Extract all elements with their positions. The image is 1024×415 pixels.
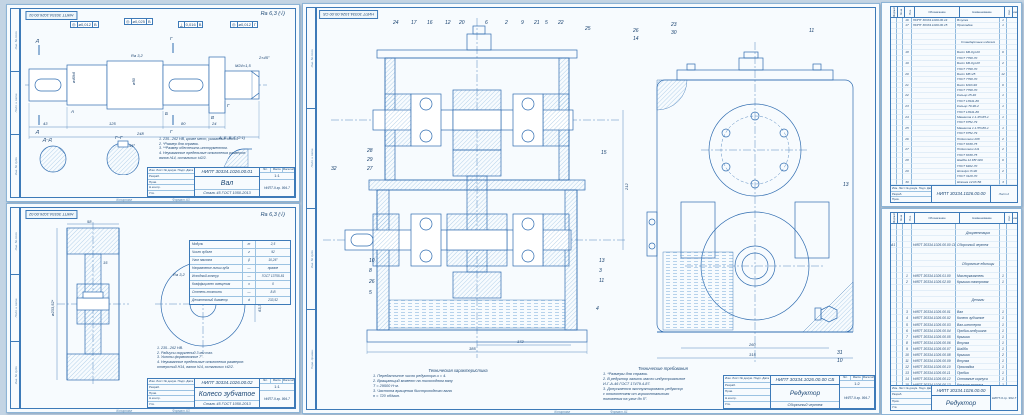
param-name: Число зубьев — [190, 249, 243, 256]
param-value: 233,52 — [256, 297, 290, 304]
col-note: Примеч. — [1013, 7, 1017, 17]
spec-header: Формат Зона Поз. Обозначение Наименовани… — [891, 213, 1017, 224]
balloon-callout: 6 — [485, 20, 488, 26]
mass-label: Масса — [271, 379, 282, 383]
sig-row: Разраб. — [724, 383, 770, 390]
spec-rows: Документация — [891, 224, 1017, 385]
lit-label: Лит. — [840, 376, 851, 380]
spec-designation: НИПТ 30334.1026.00.00 — [932, 186, 990, 201]
col-pos: Поз. — [908, 215, 912, 221]
sheet-spec-2: Формат Зона Поз. Обозначение Наименовани… — [881, 2, 1022, 207]
title-right: Лит.МассаМасштаб 1:1 НИПТ-9 гр. 994-7 — [260, 168, 294, 196]
margin-label: Перв. примен. — [310, 349, 314, 369]
gear-param-table: Модуль m 2,5 Число зубьев z 92 Угол накл… — [189, 240, 291, 305]
section-label: Г–Г — [115, 135, 123, 140]
dim: ø233,52* — [50, 299, 55, 316]
col-qty: Кол. — [1006, 215, 1010, 221]
org: НИПТ-9 гр. 994-7 — [260, 391, 294, 407]
balloon-callout: 26 — [369, 279, 375, 285]
balloon-callout: 22 — [558, 20, 564, 26]
signature-column: Изм. Лист № докум. Подп. Дата Разраб. Пр… — [148, 379, 195, 407]
dim: M24×1,5 — [235, 63, 251, 68]
balloon-callout: 23 — [671, 22, 677, 28]
part-name: Колесо зубчатое — [195, 388, 259, 400]
margin-label: Инв. № подл. — [310, 48, 314, 67]
tech-req-title: Технические требования — [603, 366, 723, 371]
margin-label: Инв. № дубл. — [14, 157, 18, 175]
balloon-callout: 12 — [445, 20, 451, 26]
scale-value: 1:1 — [260, 173, 294, 180]
mass-label: Масса — [851, 376, 862, 380]
balloon-callout: 28 — [367, 148, 373, 154]
org: НИПТ-9 гр. 994-7 — [990, 386, 1017, 410]
title-right: Лит.МассаМасштаб 1:1 НИПТ-9 гр. 994-7 — [260, 379, 294, 407]
copy-label: Копировал — [116, 409, 132, 413]
signature-column: Изм. Лист № докум. Подп. Дата Разраб. Пр… — [891, 186, 932, 202]
dim: Ra 3,2 — [131, 53, 144, 58]
title-main: НИПТ 30334.1026.00.01 Вал Сталь 45 ГОСТ … — [195, 168, 260, 196]
margin-label: Инв. № дубл. — [14, 366, 18, 384]
balloon-callout: 31 — [837, 350, 843, 356]
col-note: Примеч. — [1013, 213, 1017, 223]
param-symbol: m — [243, 241, 256, 248]
sig-row: Утв. — [891, 405, 931, 410]
param-value: ГОСТ 13755-81 — [256, 273, 290, 280]
margin-label: Подп. и дата — [310, 149, 314, 168]
gdt-frame: ◎ø0,025В — [125, 18, 153, 25]
signature-column: Изм. Лист № докум. Подп. Дата Разраб. Пр… — [891, 386, 932, 410]
sheet-number: Лист 2 — [990, 186, 1017, 202]
balloon-callout: 8 — [369, 268, 372, 274]
balloon-callout: 2 — [505, 20, 508, 26]
dim: 315 — [749, 352, 756, 357]
col-qty: Кол. — [1006, 9, 1010, 15]
balloon-callout: 10 — [837, 358, 843, 364]
tech-req-lines: 1. *Размеры для справок. 2. В редуктор з… — [603, 372, 723, 402]
dim: 43 — [43, 121, 48, 126]
param-value: правое — [256, 265, 290, 272]
param-name: Направление линии зуба — [190, 265, 243, 272]
sig-row: Утв. — [148, 402, 194, 407]
margin-label: Подп. и дата — [14, 94, 18, 113]
drawing-designation: НИПТ 30334.1026.00.02 — [195, 379, 259, 388]
sig-row: Утв. — [724, 402, 770, 408]
param-row: Степень точности — 8-В — [190, 289, 290, 297]
assembly-name: Редуктор — [771, 385, 839, 401]
drawing-board: Инв. № подл. Подп. и дата Инв. № дубл. Н… — [0, 0, 1024, 415]
corner-stamp: НИПТ 30334.1026.00.01 — [25, 11, 77, 20]
roughness-mark: Ra 6,3 (√) — [261, 212, 285, 218]
balloon-callout: 24 — [393, 20, 399, 26]
margin-label: Подп. и дата — [14, 299, 18, 318]
tech-characteristics: Техническая характеристика 1. Передаточн… — [373, 368, 543, 399]
dim: 260 — [748, 342, 756, 347]
balloon-callout: 30 — [671, 30, 677, 36]
balloon-callout: 11 — [809, 28, 814, 34]
balloon-callout: 21 — [534, 20, 540, 26]
param-symbol: x — [243, 281, 256, 288]
param-name: Исходный контур — [190, 273, 243, 280]
dim: 125 — [109, 121, 116, 126]
col-pos: Поз. — [908, 9, 912, 15]
sig-row: Пров. — [724, 389, 770, 396]
balloon-callout: 3 — [599, 268, 602, 274]
col-format: Формат — [892, 213, 896, 223]
balloon-callout: 17 — [411, 20, 417, 26]
col-name: Наименование — [960, 213, 1005, 223]
balloon-callout: 5 — [545, 20, 548, 26]
scale-label: Масштаб — [283, 379, 294, 383]
param-symbol: — — [243, 289, 256, 296]
balloon-callout: 32 — [331, 166, 337, 172]
drawing-designation: НИПТ 30334.1026.00.01 — [195, 168, 259, 177]
scale-label: Масштаб — [863, 376, 874, 380]
signature-column: Изм. Лист № докум. Подп. Дата Разраб. Пр… — [724, 376, 771, 408]
dim: 24 — [211, 121, 217, 126]
col-zone: Зона — [899, 215, 903, 221]
param-name: Модуль — [190, 241, 243, 248]
param-row: Направление линии зуба — правое — [190, 265, 290, 273]
format-label: Формат A3 — [172, 409, 189, 413]
tech-char-title: Техническая характеристика — [373, 368, 543, 373]
param-name: Коэффициент смещения — [190, 281, 243, 288]
param-symbol: d — [243, 297, 256, 304]
dim: 2×45° — [258, 55, 270, 60]
dim: Ra 3,2 — [173, 272, 186, 277]
balloon-callout: 4 — [596, 306, 599, 312]
spec-footer: Изм. Лист № докум. Подп. Дата Разраб. Пр… — [891, 185, 1017, 202]
material: Сталь 45 ГОСТ 1050-2013 — [195, 400, 259, 407]
scale-label: Масштаб — [283, 168, 294, 172]
balloon-callout: 13 — [843, 182, 849, 188]
scale-value: 1:1 — [260, 384, 294, 391]
copy-label: Копировал — [116, 198, 132, 202]
material: Сталь 45 ГОСТ 1050-2013 — [195, 189, 259, 196]
balloon-callout: 10 — [369, 258, 375, 264]
balloon-callout: 15 — [601, 150, 607, 156]
param-name: Делительный диаметр — [190, 297, 243, 304]
shaft-title-block: Изм. Лист № докум. Подп. Дата Разраб. Пр… — [147, 167, 295, 197]
roughness-mark: Ra 6,3 (√) — [261, 11, 285, 17]
dim: 248 — [136, 131, 144, 136]
spec-header: Формат Зона Поз. Обозначение Наименовани… — [891, 7, 1017, 18]
param-row: Коэффициент смещения x 0 — [190, 281, 290, 289]
param-value: 10,26° — [256, 257, 290, 264]
lit-label: Лит. — [260, 379, 271, 383]
spec-title: Редуктор — [932, 396, 990, 410]
balloon-callout: 9 — [521, 20, 524, 26]
param-value: 0 — [256, 281, 290, 288]
cut-label: Д — [35, 129, 40, 134]
dim: 45° — [129, 143, 135, 148]
param-row: Угол наклона β 10,26° — [190, 257, 290, 265]
datum-letter: В — [211, 115, 214, 120]
sheet-assembly: Инв. № подл. Подп. и дата Инв. № дубл. П… — [302, 3, 880, 414]
param-value: 8-В — [256, 289, 290, 296]
title-main: НИПТ 30334.1026.00.00 СБ Редуктор Сбороч… — [771, 376, 840, 408]
signature-column: Изм. Лист № докум. Подп. Дата Разраб. Пр… — [148, 168, 195, 196]
dim: 212 — [624, 183, 629, 191]
datum-letter: Г — [227, 103, 230, 108]
copy-label: Копировал — [554, 410, 570, 414]
section-label: Д–Д — [42, 137, 53, 142]
col-designation: Обозначение — [915, 213, 960, 223]
col-designation: Обозначение — [915, 7, 960, 17]
param-value: 92 — [256, 249, 290, 256]
sig-header: Изм. Лист № докум. Подп. Дата — [724, 376, 770, 383]
margin-label: Инв. № подл. — [14, 232, 18, 251]
param-symbol: — — [243, 265, 256, 272]
sig-row: Н.контр. — [724, 396, 770, 403]
balloon-callout: 16 — [427, 20, 433, 26]
assembly-side-view: 260 315 — [645, 14, 865, 366]
dim: ø40k6 — [71, 71, 76, 83]
gear-notes: 1. 235...262 HB. 2. Радиусы скруглений 3… — [157, 346, 292, 369]
param-row: Исходный контур — ГОСТ 13755-81 — [190, 273, 290, 281]
dim: 80 — [181, 121, 186, 126]
tech-char-lines: 1. Передаточное число редуктора u = 4. 2… — [373, 374, 543, 399]
org: НИПТ-9 гр. 994-7 — [260, 180, 294, 196]
title-main: НИПТ 30334.1026.00.02 Колесо зубчатое Ст… — [195, 379, 260, 407]
balloon-callout: 20 — [459, 20, 465, 26]
drawing-designation: НИПТ 30334.1026.00.00 СБ — [771, 376, 839, 385]
balloon-callout: 5 — [369, 290, 372, 296]
param-name: Степень точности — [190, 289, 243, 296]
spec-designation: НИПТ 30334.1026.00.00 — [932, 386, 990, 396]
balloon-callout: 27 — [367, 166, 373, 172]
dim: 172 — [517, 339, 524, 344]
spec-footer: Изм. Лист № докум. Подп. Дата Разраб. Пр… — [891, 385, 1017, 410]
dim: 58 — [87, 220, 92, 224]
balloon-callout: 25 — [585, 26, 591, 32]
col-name: Наименование — [960, 7, 1005, 17]
sig-row: Пров. — [891, 197, 931, 202]
footer-main: НИПТ 30334.1026.00.00 — [932, 186, 990, 202]
format-label: Формат A1 — [610, 410, 627, 414]
param-row: Число зубьев z 92 — [190, 249, 290, 257]
col-format: Формат — [892, 7, 896, 17]
balloon-callout: 13 — [599, 258, 605, 264]
mass-label: Масса — [271, 168, 282, 172]
param-value: 2,5 — [256, 241, 290, 248]
tech-requirements: Технические требования 1. *Размеры для с… — [603, 366, 723, 402]
param-row: Делительный диаметр d 233,52 — [190, 297, 290, 304]
param-symbol: — — [243, 273, 256, 280]
datum-letter: Б — [165, 111, 168, 116]
footer-main: НИПТ 30334.1026.00.00 Редуктор — [932, 386, 990, 410]
title-right: Лит.МассаМасштаб 1:2 НИПТ-9 гр. 994-7 — [840, 376, 874, 408]
corner-stamp: НИПТ 30334.1026.00.02 — [25, 210, 77, 219]
sig-row: Утв. — [148, 191, 194, 196]
lit-label: Лит. — [260, 168, 271, 172]
balloon-callout: 26 — [633, 28, 639, 34]
param-name: Угол наклона — [190, 257, 243, 264]
datum-letter: А — [70, 109, 74, 114]
sheet-spec-1: Формат Зона Поз. Обозначение Наименовани… — [881, 208, 1022, 415]
dim: 15 — [103, 260, 108, 265]
param-row: Модуль m 2,5 — [190, 241, 290, 249]
balloon-callout: 14 — [633, 36, 639, 42]
cut-label: Д — [35, 38, 40, 43]
margin-label: Инв. № дубл. — [310, 250, 314, 268]
org: НИПТ-9 гр. 994-7 — [840, 388, 874, 408]
part-name: Вал — [195, 177, 259, 189]
spec-table-1: Формат Зона Поз. Обозначение Наименовани… — [890, 212, 1018, 411]
gear-title-block: Изм. Лист № докум. Подп. Дата Разраб. Пр… — [147, 378, 295, 408]
balloon-callout: 29 — [367, 157, 373, 163]
param-symbol: z — [243, 249, 256, 256]
shaft-notes: 1. 235...262 HB, кроме мест, указанных о… — [159, 137, 294, 160]
assembly-section-view: 385 172 212 — [317, 14, 637, 364]
param-symbol: β — [243, 257, 256, 264]
gdt-value: ø0,025 — [131, 18, 147, 25]
balloon-callout: 11 — [599, 278, 604, 284]
format-label: Формат A3 — [172, 198, 189, 202]
assembly-title-block: Изм. Лист № докум. Подп. Дата Разраб. Пр… — [723, 375, 875, 409]
spec-table-2: Формат Зона Поз. Обозначение Наименовани… — [890, 6, 1018, 203]
cut-label: Г — [170, 129, 173, 134]
dim: ø50 — [131, 77, 136, 85]
assembly-subtitle: Сборочный чертеж — [771, 401, 839, 408]
gdt-datum: В — [146, 18, 153, 25]
margin-label: Инв. № подл. — [14, 31, 18, 50]
col-zone: Зона — [899, 9, 903, 15]
spec-rows: 16 НИПТ 30334.1026.00.14 Втулка 1 17 НИП… — [891, 18, 1017, 185]
cut-label: Г — [170, 36, 173, 41]
sheet-gear: Инв. № подл. Подп. и дата Инв. № дубл. Н… — [6, 203, 300, 413]
scale-value: 1:2 — [840, 381, 874, 388]
sheet-shaft: Инв. № подл. Подп. и дата Инв. № дубл. Н… — [6, 4, 300, 202]
dim: 385 — [469, 346, 476, 351]
